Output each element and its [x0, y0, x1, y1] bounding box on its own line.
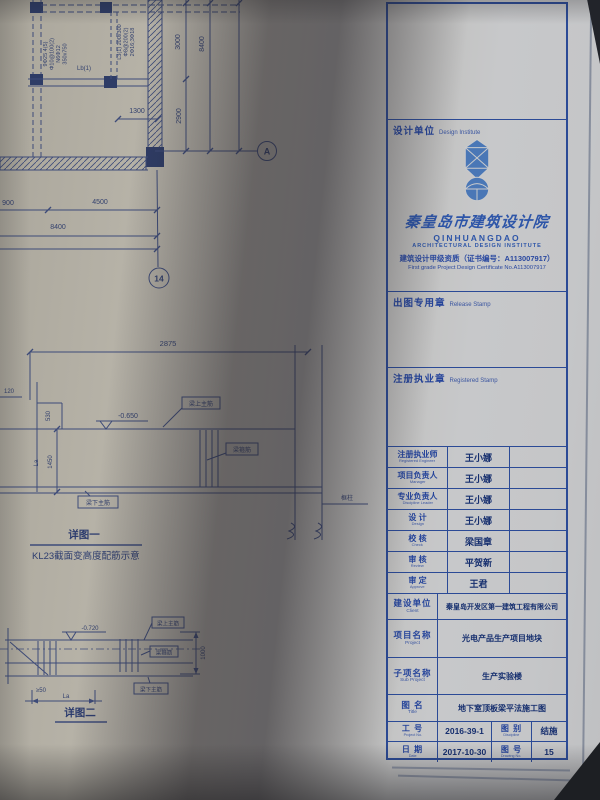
paper-fold-line	[398, 775, 570, 781]
release-stamp-section: 出图专用章 Release Stamp	[388, 292, 566, 368]
beam-note2-line1: L3(1) 200x300	[117, 24, 123, 59]
subproject-label-cn: 子项名称	[393, 669, 431, 678]
institute-name-en1: QINHUANGDAO	[388, 233, 566, 243]
design-unit-label-cn: 设计单位	[393, 123, 435, 137]
dim-3000-text: 3000	[175, 34, 182, 50]
fig-no-value: 15	[544, 748, 553, 757]
registered-stamp-label-cn: 注册执业章	[393, 371, 446, 385]
grid-bubble-14: 14	[149, 170, 169, 288]
detail1-beam-outline	[0, 345, 322, 540]
personnel-row: 专业负责人Discipline Leader 王小娜	[388, 489, 566, 510]
client-value: 秦皇岛开发区第一建筑工程有限公司	[446, 602, 558, 612]
detail2-stirrup-label: 梁箍筋	[156, 649, 173, 657]
grid-bubble-a: A	[155, 142, 277, 161]
dim-1450-text: 1450	[48, 455, 54, 469]
detail2-level-mark: -0.720	[62, 626, 106, 640]
plan-wall-hatch	[0, 0, 164, 170]
client-label-en: Client	[406, 609, 418, 614]
personnel-row: 项目负责人Manager 王小娜	[388, 468, 566, 489]
plan-vertical-dims: 3000 2900 8400	[175, 0, 242, 154]
plan-beam-notes: 9Φ25 4(5) Φ10@100(2) N6Φ12 350x750 Lb(1)…	[43, 24, 136, 72]
person-name: 王小娜	[465, 472, 492, 485]
dim-900-text: 900	[2, 200, 14, 207]
design-institute-section: 设计单位 Design Institute 秦皇岛市建筑设计院 QINHUANG…	[388, 120, 566, 292]
client-row: 建设单位Client 秦皇岛开发区第一建筑工程有限公司	[388, 594, 566, 620]
dim-la2-text: La	[63, 694, 70, 700]
drawing-title-label-en: Title	[408, 710, 417, 715]
discipline-value: 结施	[540, 727, 557, 736]
institute-logo	[459, 138, 495, 204]
subproject-value: 生产实验楼	[482, 671, 522, 682]
institute-name-cn: 秦皇岛市建筑设计院	[387, 211, 567, 232]
photo-corner-dark-top-right	[584, 0, 600, 64]
detail2-title: 详图二	[55, 706, 107, 722]
certificate-en: First grade Project Design Certificate N…	[388, 265, 566, 271]
certificate-cn: 建筑设计甲级资质（证书编号：A113007917）	[388, 253, 566, 264]
beam-note1-line3: N6Φ12	[56, 45, 62, 63]
role-label-en: Review	[411, 564, 424, 568]
blueprint-photo: 9Φ25 4(5) Φ10@100(2) N6Φ12 350x750 Lb(1)…	[0, 0, 600, 800]
dim-4500-text: 4500	[92, 199, 108, 206]
beam-note1-line2: Φ10@100(2)	[50, 38, 56, 70]
beam-note1-line4: 350x750	[63, 43, 69, 64]
role-label-en: Approve	[410, 586, 425, 590]
dim-530-text: 530	[46, 410, 52, 421]
beam-note1-line1: 9Φ25 4(5)	[43, 41, 49, 66]
detail1-bottom-rebar-label: 梁下主筋	[86, 499, 110, 507]
plan-horizontal-dims: 900 4500 8400	[0, 199, 160, 252]
detail1-title: 详图一 KL23截面变高度配筋示意	[30, 528, 142, 562]
role-label-en: Discipline Leader	[402, 501, 432, 505]
personnel-row: 审 核Review 平贺新	[388, 552, 566, 573]
date-value: 2017-10-30	[443, 748, 486, 757]
client-label-cn: 建设单位	[393, 599, 431, 608]
dim-2900-text: 2900	[176, 108, 183, 124]
date-label-en: Date	[409, 754, 417, 758]
release-stamp-label-cn: 出图专用章	[393, 295, 446, 309]
footer-row-2: 日 期Date 2017-10-30 图 号Drawing No. 15	[388, 742, 566, 762]
person-name: 王小娜	[465, 451, 492, 464]
subproject-row: 子项名称Sub Project 生产实验楼	[388, 658, 566, 695]
personnel-row: 校 核Check 梁国章	[388, 531, 566, 552]
detail2-level-text: -0.720	[81, 626, 99, 632]
subproject-label-en: Sub Project	[400, 678, 425, 683]
paper-fold-line	[392, 766, 570, 771]
footer-row-1: 工 号Project No. 2016-39-1 图 别Discipline 结…	[388, 722, 566, 742]
role-label-en: Manager	[410, 480, 426, 484]
project-label-cn: 项目名称	[393, 631, 431, 640]
project-label-en: Project	[405, 641, 420, 646]
drawing-area: 9Φ25 4(5) Φ10@100(2) N6Φ12 350x750 Lb(1)…	[0, 0, 390, 800]
institute-name-en2: ARCHITECTURAL DESIGN INSTITUTE	[388, 243, 566, 249]
dim-8400-h-text: 8400	[50, 224, 66, 231]
title-block: 设计单位 Design Institute 秦皇岛市建筑设计院 QINHUANG…	[386, 2, 568, 760]
registered-stamp-section: 注册执业章 Registered Stamp	[388, 368, 566, 447]
detail2-top-rebar-label: 梁上主筋	[157, 620, 180, 628]
dim-8400-v-text: 8400	[199, 36, 206, 52]
project-no-label-en: Project No.	[403, 734, 421, 738]
grid-14-text: 14	[154, 274, 164, 284]
detail1-level-mark: -0.650	[96, 413, 148, 429]
personnel-row: 注册执业师Registered Engineer 王小娜	[388, 447, 566, 468]
dim-1000-text: 1000	[201, 646, 207, 660]
design-unit-label-en: Design Institute	[439, 130, 480, 136]
role-label-en: Design	[411, 522, 423, 526]
beam-note2-line2: Φ8@200(2)	[124, 27, 130, 56]
release-stamp-label-en: Release Stamp	[450, 302, 491, 308]
role-label-en: Registered Engineer	[399, 459, 435, 463]
beam-label-lb1: Lb(1)	[77, 66, 91, 72]
dim-min50-text: ≥50	[36, 688, 47, 694]
person-name: 王君	[469, 577, 487, 590]
detail2-title-text: 详图二	[64, 706, 96, 719]
detail1-dim-2875: 2875	[27, 339, 311, 400]
grid-a-text: A	[264, 147, 271, 157]
dim-la-text: La	[34, 459, 40, 466]
stamp-box-empty	[388, 4, 566, 120]
person-name: 梁国章	[465, 535, 492, 548]
dim-2875-text: 2875	[160, 339, 177, 348]
project-no-value: 2016-39-1	[445, 727, 484, 736]
detail1-level-text: -0.650	[118, 413, 138, 420]
project-value: 光电产品生产项目地块	[462, 633, 542, 644]
detail2-labels: 梁上主筋 梁箍筋 梁下主筋	[134, 617, 184, 694]
drawing-title-label-cn: 图 名	[401, 701, 423, 710]
personnel-table: 注册执业师Registered Engineer 王小娜 项目负责人Manage…	[388, 447, 566, 594]
detail1-stirrup-label: 梁箍筋	[233, 446, 251, 454]
detail1-column-label: 框柱	[341, 494, 353, 502]
role-label-en: Check	[412, 543, 423, 547]
dim-1300-text: 1300	[129, 108, 145, 115]
discipline-label-en: Discipline	[504, 734, 520, 738]
beam-note2-line3: 2Φ16;3Φ18	[130, 28, 136, 57]
personnel-row: 审 定Approve 王君	[388, 573, 566, 594]
paper-edge	[582, 0, 592, 800]
registered-stamp-label-en: Registered Stamp	[450, 378, 498, 384]
detail1-title-text: 详图一	[68, 528, 100, 541]
drawing-title-row: 图 名Title 地下室顶板梁平法施工图	[388, 695, 566, 722]
dim-120-text: 120	[4, 389, 15, 395]
project-row: 项目名称Project 光电产品生产项目地块	[388, 620, 566, 658]
personnel-row: 设 计Design 王小娜	[388, 510, 566, 531]
drawing-title-value: 地下室顶板梁平法施工图	[458, 703, 546, 714]
person-name: 王小娜	[465, 514, 492, 527]
fig-no-label-en: Drawing No.	[501, 754, 522, 758]
person-name: 王小娜	[465, 493, 492, 506]
plan-beams	[28, 0, 240, 158]
person-name: 平贺新	[465, 556, 492, 569]
detail2-dims: 1000 ≥50 La	[25, 632, 207, 704]
detail1-top-rebar-label: 梁上主筋	[189, 400, 213, 408]
detail1-subtitle-text: KL23截面变高度配筋示意	[32, 550, 140, 562]
detail2-bottom-rebar-label: 梁下主筋	[140, 686, 163, 694]
